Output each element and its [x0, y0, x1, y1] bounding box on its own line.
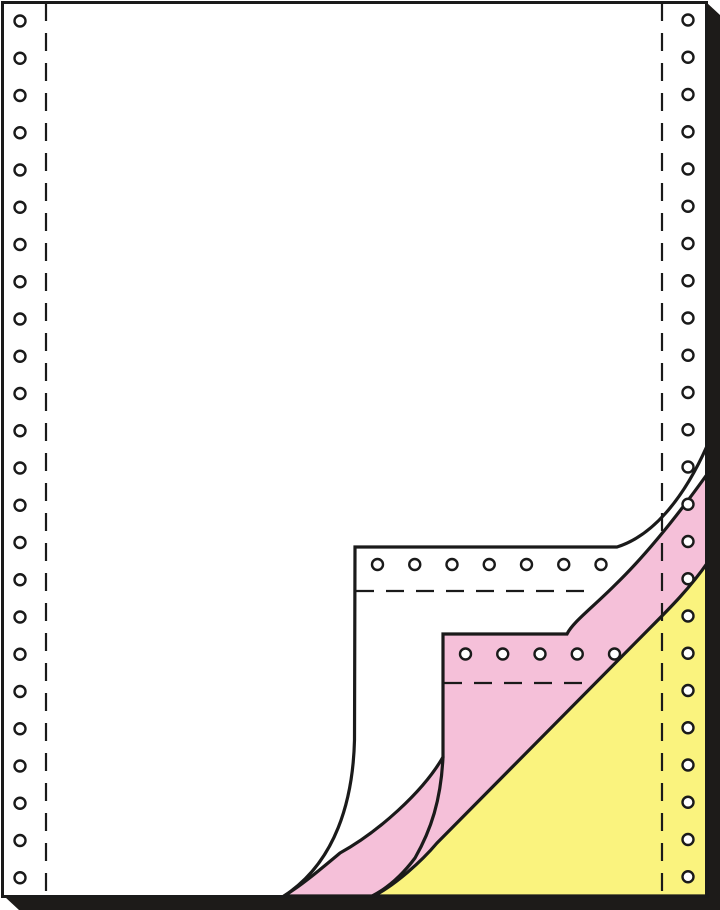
left-sprocket-column-sprocket-hole	[15, 574, 26, 585]
right-sprocket-column-sprocket-hole	[683, 89, 694, 100]
right-sprocket-column-sprocket-hole	[683, 387, 694, 398]
white-band-sprocket-row-sprocket-hole	[372, 559, 383, 570]
right-sprocket-column-sprocket-hole	[683, 648, 694, 659]
paper-illustration-canvas	[0, 0, 720, 910]
left-sprocket-column-sprocket-hole	[15, 388, 26, 399]
right-sprocket-column-sprocket-hole	[683, 797, 694, 808]
right-sprocket-column-sprocket-hole	[683, 424, 694, 435]
pink-band-sprocket-row-sprocket-hole	[497, 649, 508, 660]
right-sprocket-column-sprocket-hole	[683, 685, 694, 696]
pink-band-sprocket-row-sprocket-hole	[460, 649, 471, 660]
left-sprocket-column-sprocket-hole	[15, 16, 26, 27]
right-sprocket-column-sprocket-hole	[683, 201, 694, 212]
left-sprocket-column-sprocket-hole	[15, 314, 26, 325]
right-sprocket-column-sprocket-hole	[683, 350, 694, 361]
right-sprocket-column-sprocket-hole	[683, 722, 694, 733]
left-sprocket-column-sprocket-hole	[15, 351, 26, 362]
left-sprocket-column-sprocket-hole	[15, 425, 26, 436]
left-sprocket-column-sprocket-hole	[15, 165, 26, 176]
right-sprocket-column-sprocket-hole	[683, 52, 694, 63]
right-sprocket-column-sprocket-hole	[683, 313, 694, 324]
left-sprocket-column-sprocket-hole	[15, 649, 26, 660]
right-sprocket-column-sprocket-hole	[683, 499, 694, 510]
left-sprocket-column-sprocket-hole	[15, 872, 26, 883]
white-band-sprocket-row-sprocket-hole	[558, 559, 569, 570]
pink-band-sprocket-row-sprocket-hole	[535, 649, 546, 660]
right-sprocket-column-sprocket-hole	[683, 536, 694, 547]
pink-band-sprocket-row-sprocket-hole	[609, 649, 620, 660]
left-sprocket-column-sprocket-hole	[15, 537, 26, 548]
right-sprocket-column-sprocket-hole	[683, 238, 694, 249]
pink-band-sprocket-row-sprocket-hole	[572, 649, 583, 660]
white-band-sprocket-row-sprocket-hole	[521, 559, 532, 570]
right-sprocket-column-sprocket-hole	[683, 275, 694, 286]
left-sprocket-column-sprocket-hole	[15, 500, 26, 511]
left-sprocket-column-sprocket-hole	[15, 90, 26, 101]
left-sprocket-column-sprocket-hole	[15, 686, 26, 697]
white-band-sprocket-row-sprocket-hole	[447, 559, 458, 570]
right-sprocket-column-sprocket-hole	[683, 164, 694, 175]
right-sprocket-column-sprocket-hole	[683, 834, 694, 845]
left-sprocket-column-sprocket-hole	[15, 239, 26, 250]
left-sprocket-column-sprocket-hole	[15, 127, 26, 138]
left-sprocket-column-sprocket-hole	[15, 612, 26, 623]
right-sprocket-column-sprocket-hole	[683, 871, 694, 882]
left-sprocket-column-sprocket-hole	[15, 53, 26, 64]
right-sprocket-column-sprocket-hole	[683, 611, 694, 622]
left-sprocket-column-sprocket-hole	[15, 202, 26, 213]
left-sprocket-column-sprocket-hole	[15, 463, 26, 474]
left-sprocket-column-sprocket-hole	[15, 276, 26, 287]
right-sprocket-column-sprocket-hole	[683, 15, 694, 26]
white-band-sprocket-row-sprocket-hole	[484, 559, 495, 570]
white-band-sprocket-row-sprocket-hole	[596, 559, 607, 570]
right-sprocket-column-sprocket-hole	[683, 573, 694, 584]
right-sprocket-column-sprocket-hole	[683, 126, 694, 137]
white-band-sprocket-row-sprocket-hole	[409, 559, 420, 570]
left-sprocket-column-sprocket-hole	[15, 798, 26, 809]
right-sprocket-column-sprocket-hole	[683, 760, 694, 771]
right-sprocket-column-sprocket-hole	[683, 462, 694, 473]
product-image	[0, 0, 720, 910]
left-sprocket-column-sprocket-hole	[15, 835, 26, 846]
left-sprocket-column-sprocket-hole	[15, 761, 26, 772]
left-sprocket-column-sprocket-hole	[15, 723, 26, 734]
